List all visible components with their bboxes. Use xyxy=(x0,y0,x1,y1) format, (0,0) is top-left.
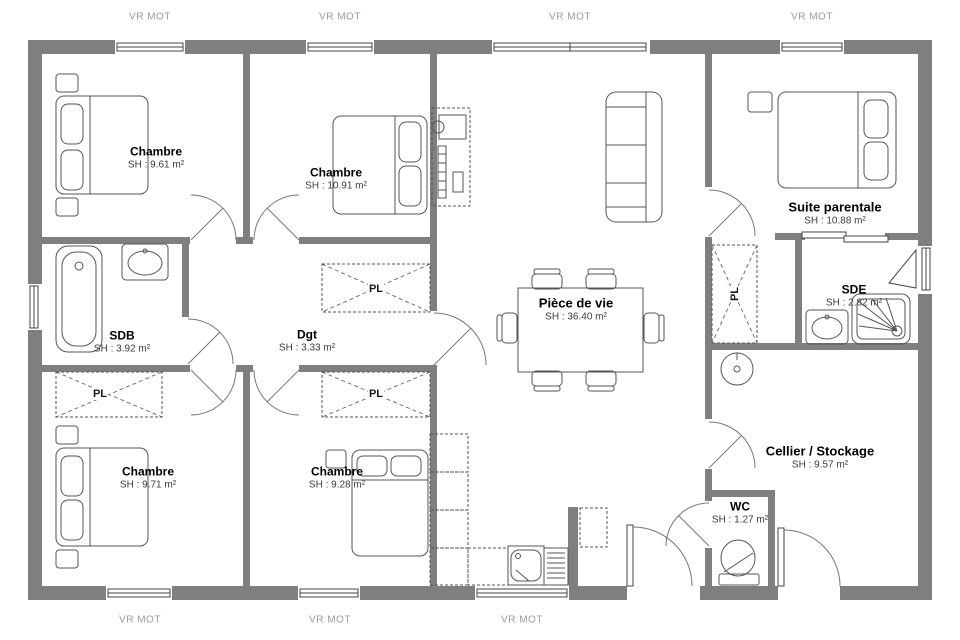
dining-table-icon xyxy=(497,269,664,391)
room-area: SH : 9.28 m² xyxy=(309,479,365,492)
room-label-sdb: SDB SH : 3.92 m² xyxy=(94,328,150,356)
room-label-chambre-top-mid: Chambre SH : 10.91 m² xyxy=(305,165,367,193)
room-label-piece-de-vie: Pièce de vie SH : 36.40 m² xyxy=(539,296,613,325)
room-label-chambre-bot-left: Chambre SH : 9.71 m² xyxy=(120,464,176,492)
room-label-wc: WC SH : 1.27 m² xyxy=(712,499,768,527)
desk-icon xyxy=(432,108,470,206)
closet-label: PL xyxy=(368,388,384,400)
room-label-degagement: Dgt SH : 3.33 m² xyxy=(279,327,335,355)
shutter-label: VR MOT xyxy=(501,615,543,626)
room-area: SH : 3.33 m² xyxy=(279,342,335,355)
room-name: Chambre xyxy=(120,464,176,479)
window-icon xyxy=(108,589,170,597)
room-name: SDE xyxy=(826,282,882,297)
room-name: Chambre xyxy=(305,165,367,180)
bed-icon xyxy=(748,92,896,188)
closet-label: PL xyxy=(729,286,741,302)
window-icon xyxy=(30,286,38,328)
bed-icon xyxy=(56,426,148,568)
shutter-label: VR MOT xyxy=(309,615,351,626)
shutter-label: VR MOT xyxy=(549,12,591,23)
room-name: Chambre xyxy=(128,144,184,159)
toilet-icon xyxy=(719,540,759,585)
room-name: Dgt xyxy=(279,327,335,342)
room-area: SH : 9.61 m² xyxy=(128,159,184,172)
room-area: SH : 1.27 m² xyxy=(712,514,768,527)
sliding-door-icon xyxy=(802,232,888,242)
closet-icon xyxy=(56,372,162,417)
window-icon xyxy=(308,43,372,51)
room-name: Cellier / Stockage xyxy=(766,444,874,460)
window-icon xyxy=(922,248,930,290)
room-name: Pièce de vie xyxy=(539,296,613,312)
room-area: SH : 3.92 m² xyxy=(94,343,150,356)
room-label-chambre-bot-mid: Chambre SH : 9.28 m² xyxy=(309,464,365,492)
interior-walls xyxy=(42,54,918,586)
shutter-label: VR MOT xyxy=(129,12,171,23)
closet-label: PL xyxy=(92,388,108,400)
entrance-door-icon xyxy=(627,525,692,586)
room-area: SH : 10.88 m² xyxy=(788,216,881,229)
casement-window-leaf-icon xyxy=(889,250,916,288)
room-label-chambre-top-left: Chambre SH : 9.61 m² xyxy=(128,144,184,172)
cellier-door-icon xyxy=(778,528,840,586)
window-icon xyxy=(782,43,842,51)
window-icon xyxy=(494,43,646,51)
room-name: SDB xyxy=(94,328,150,343)
water-heater-icon xyxy=(721,353,753,385)
window-icon xyxy=(117,43,183,51)
room-area: SH : 9.57 m² xyxy=(766,460,874,473)
window-icon xyxy=(477,589,567,597)
closet-icons xyxy=(56,245,757,417)
room-area: SH : 10.91 m² xyxy=(305,180,367,193)
room-label-suite-parentale: Suite parentale SH : 10.88 m² xyxy=(788,200,881,229)
room-name: Chambre xyxy=(309,464,365,479)
kitchen-counter-icon xyxy=(430,434,607,585)
plan-drawing xyxy=(0,0,960,640)
room-name: WC xyxy=(712,499,768,514)
shutter-label: VR MOT xyxy=(119,615,161,626)
sink-icon xyxy=(806,310,848,344)
shutter-label: VR MOT xyxy=(791,12,833,23)
sink-icon xyxy=(122,244,168,280)
room-label-cellier: Cellier / Stockage SH : 9.57 m² xyxy=(766,444,874,473)
window-icon xyxy=(300,589,358,597)
room-area: SH : 2.82 m² xyxy=(826,297,882,310)
shutter-label: VR MOT xyxy=(319,12,361,23)
room-label-sde: SDE SH : 2.82 m² xyxy=(826,282,882,310)
closet-label: PL xyxy=(368,283,384,295)
room-name: Suite parentale xyxy=(788,200,881,216)
room-area: SH : 9.71 m² xyxy=(120,479,176,492)
sofa-icon xyxy=(606,92,662,222)
floor-plan: Chambre SH : 9.61 m² Chambre SH : 10.91 … xyxy=(0,0,960,640)
room-area: SH : 36.40 m² xyxy=(539,312,613,325)
